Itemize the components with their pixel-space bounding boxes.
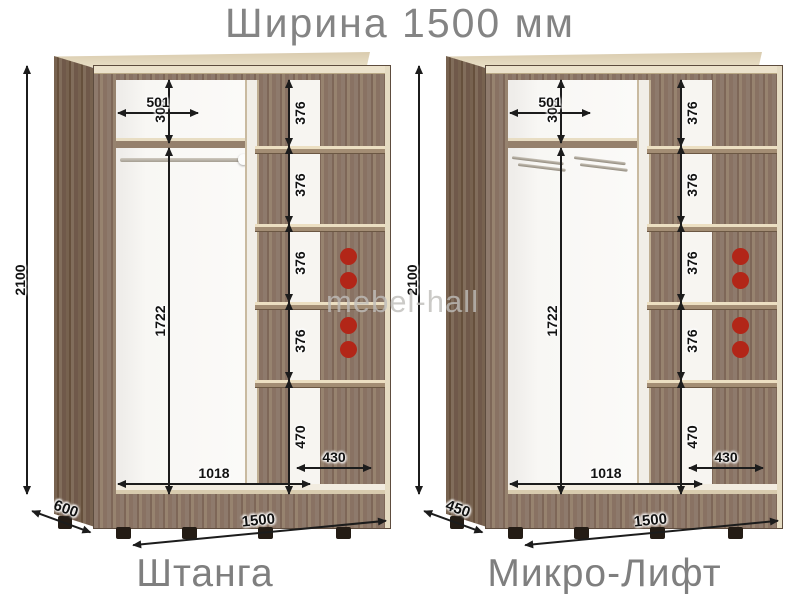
- dim-value: 2100: [11, 258, 29, 302]
- dim-line: [288, 146, 290, 224]
- clothes-rod: [120, 158, 244, 162]
- top-shelf: [116, 138, 255, 148]
- dim-value: 430: [689, 448, 763, 466]
- base-panel: [116, 484, 385, 494]
- watermark: mebel-hall: [326, 284, 479, 320]
- center-divider: [637, 80, 651, 494]
- cabinet-foot: [116, 527, 131, 539]
- dim-value: 376: [683, 319, 701, 363]
- dim-value: 376: [291, 163, 309, 207]
- page-title: Ширина 1500 мм: [0, 0, 800, 47]
- dim-line: [288, 224, 290, 302]
- dim-line: [680, 302, 682, 380]
- cabinet-label-shtanga: Штанга: [20, 552, 390, 596]
- dim-line: [510, 483, 702, 485]
- shelf: [255, 146, 385, 154]
- dim-value: 1018: [510, 464, 702, 482]
- red-marker-dot: [732, 317, 749, 334]
- top-shelf: [508, 138, 647, 148]
- front-top-edge: [486, 66, 782, 74]
- front-right-edge: [777, 66, 782, 528]
- dim-value: 376: [683, 91, 701, 135]
- dim-line: [288, 80, 290, 146]
- dim-value: 376: [291, 319, 309, 363]
- dim-line: [680, 146, 682, 224]
- shelf: [255, 224, 385, 232]
- shelf: [647, 302, 777, 310]
- dim-value: 430: [297, 448, 371, 466]
- shelf: [647, 146, 777, 154]
- red-marker-dot: [732, 248, 749, 265]
- dim-line: [118, 483, 310, 485]
- shelf: [255, 380, 385, 388]
- dim-value: 501: [118, 93, 198, 111]
- red-marker-dot: [340, 248, 357, 265]
- dim-value: 376: [291, 241, 309, 285]
- dim-value: 1722: [543, 299, 561, 343]
- dim-value: 376: [683, 163, 701, 207]
- cabinet-foot: [508, 527, 523, 539]
- front-top-edge: [94, 66, 390, 74]
- wardrobe-top-panel: [446, 52, 762, 67]
- shelf: [647, 224, 777, 232]
- dim-line: [680, 224, 682, 302]
- dim-value: 376: [291, 91, 309, 135]
- red-marker-dot: [732, 272, 749, 289]
- wardrobe-top-panel: [54, 52, 370, 67]
- base-panel: [508, 484, 777, 494]
- dim-value: 376: [683, 241, 701, 285]
- cabinet-label-mikro-lift: Микро-Лифт: [412, 552, 797, 596]
- wardrobe-side-panel: [54, 56, 98, 528]
- red-marker-dot: [340, 341, 357, 358]
- dim-line: [288, 302, 290, 380]
- shelf: [647, 380, 777, 388]
- diagram-page: Ширина 1500 мм: [0, 0, 800, 600]
- dim-line: [680, 80, 682, 146]
- red-marker-dot: [732, 341, 749, 358]
- dim-value: 1018: [118, 464, 310, 482]
- dim-value: 1722: [151, 299, 169, 343]
- dim-value: 501: [510, 93, 590, 111]
- center-divider: [245, 80, 259, 494]
